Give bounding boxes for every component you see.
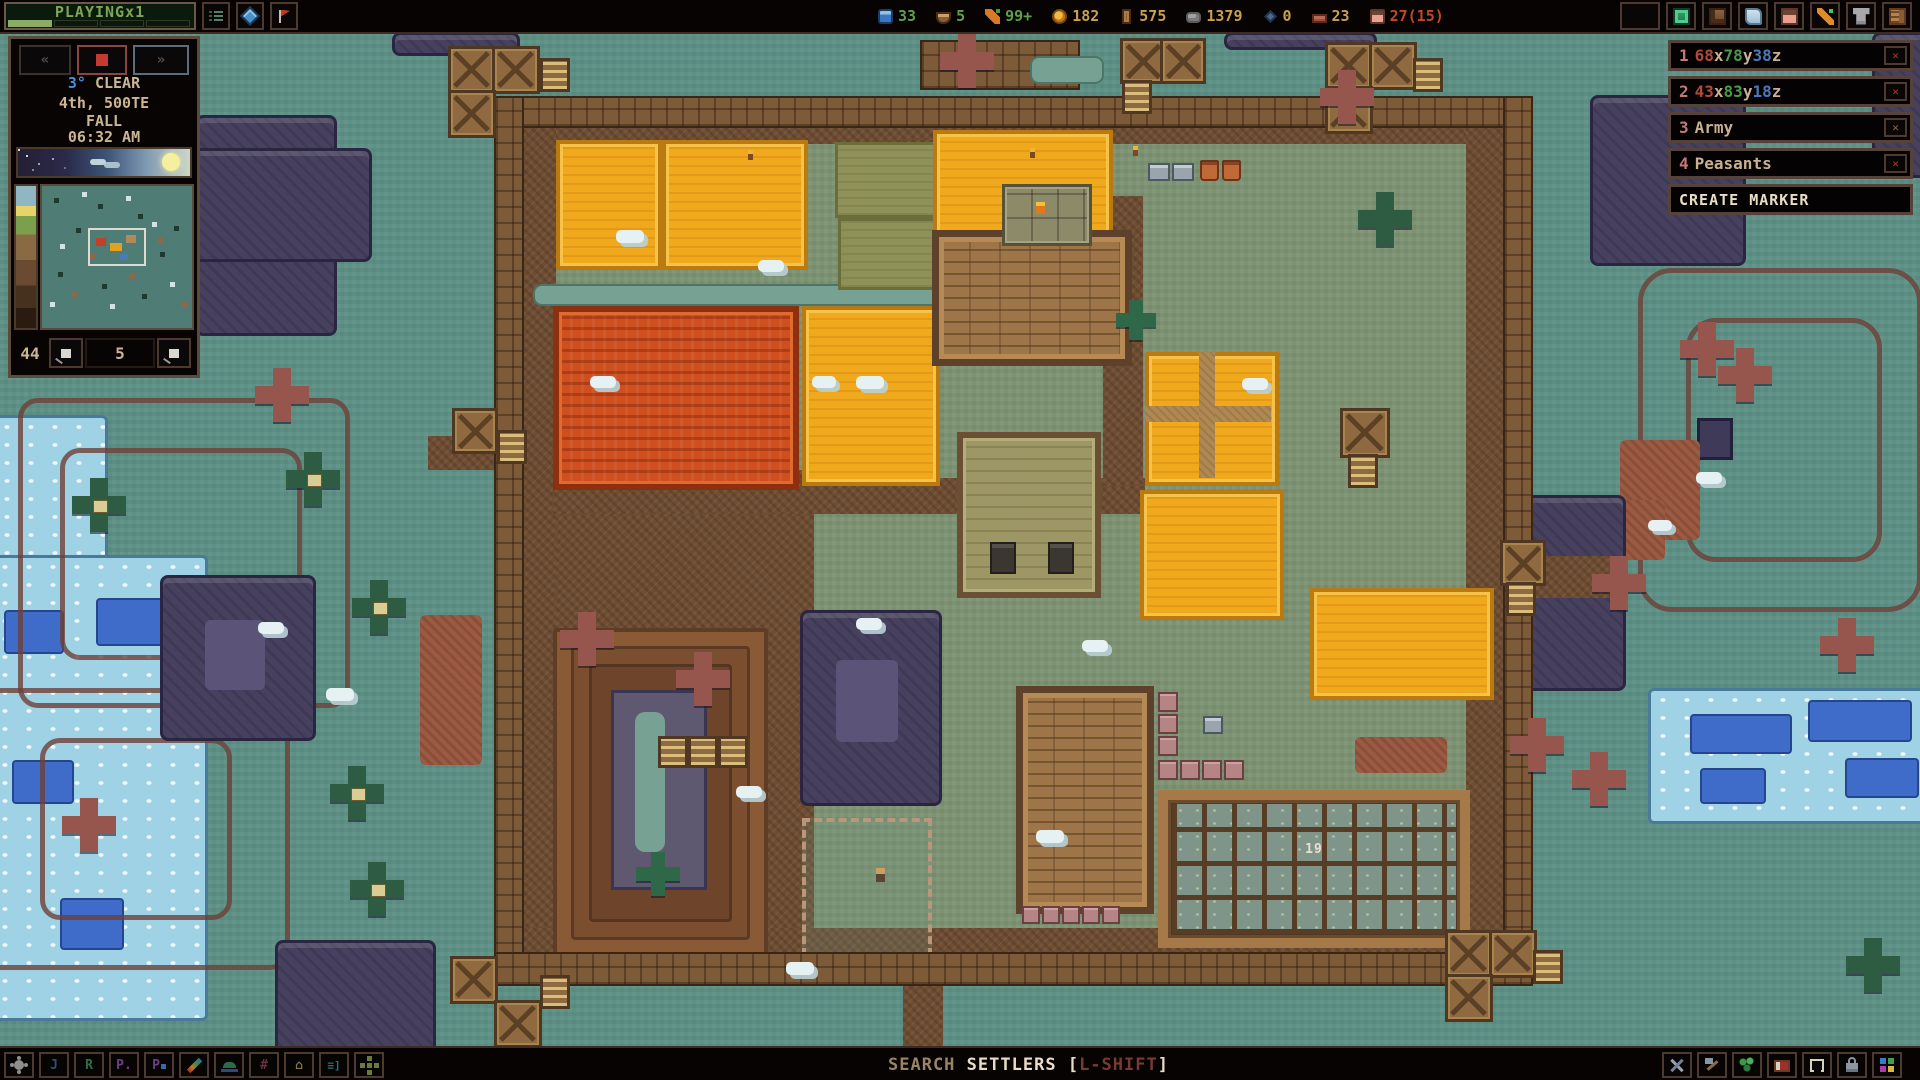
barrel[interactable]	[1022, 906, 1040, 924]
scroll-button[interactable]	[1738, 2, 1768, 30]
cloud	[1242, 378, 1268, 390]
stone-kiln[interactable]	[1002, 184, 1092, 246]
delete-marker-button[interactable]: ✕	[1884, 118, 1907, 137]
stockpile-grid[interactable]: 19	[1158, 790, 1470, 948]
minimap-terrain-specks	[42, 186, 47, 191]
time-panel: « » 3° CLEAR 4th, 500TE FALL 06:32 AM 44…	[8, 36, 200, 378]
speed-segments[interactable]	[8, 20, 190, 27]
stone-icon	[1186, 12, 1201, 23]
autumn-tree[interactable]	[1592, 556, 1646, 610]
palisade-wall-left[interactable]	[494, 96, 524, 962]
green-bush[interactable]	[1116, 300, 1156, 340]
wand-button[interactable]	[1810, 2, 1840, 30]
rooms-icon: R	[85, 1058, 93, 1073]
sign-post	[93, 500, 108, 513]
jobs-icon: J	[50, 1058, 58, 1073]
kiln-fire	[1036, 202, 1045, 214]
harvested-field[interactable]	[838, 218, 946, 290]
resource-gems[interactable]: 0	[1263, 7, 1292, 25]
stop-icon	[96, 54, 108, 66]
wall-tower[interactable]	[1489, 930, 1537, 978]
pine-tree[interactable]	[352, 580, 406, 634]
lock-icon	[1844, 1057, 1860, 1073]
delete-marker-button[interactable]: ✕	[1884, 46, 1907, 65]
blank-button[interactable]	[1620, 2, 1660, 30]
zones-icon: P	[152, 1058, 166, 1073]
farm-tool-button[interactable]	[1732, 1052, 1762, 1078]
resource-amber[interactable]: 182	[1052, 7, 1099, 25]
cloud	[326, 688, 354, 701]
tower-ladder[interactable]	[540, 58, 570, 92]
settler-figure[interactable]	[876, 868, 885, 882]
game-window: 19	[0, 0, 1920, 1080]
pattern-icon	[367, 1063, 372, 1068]
weather-value: CLEAR	[95, 74, 140, 92]
marker-count-value: 5	[85, 338, 155, 368]
autumn-tree[interactable]	[255, 368, 309, 422]
minimap-controls: 44 5	[11, 336, 197, 370]
clay-pot[interactable]	[1222, 160, 1241, 181]
wall-tower[interactable]	[1160, 38, 1206, 84]
jobs-tool-button[interactable]: J	[39, 1052, 69, 1078]
resource-settlers[interactable]: 27(15)	[1370, 7, 1444, 25]
wall-torch	[1133, 146, 1138, 156]
furniture-tool-button[interactable]	[1767, 1052, 1797, 1078]
ladder[interactable]	[688, 736, 718, 768]
settler-icon	[1781, 8, 1798, 25]
marker-row-3[interactable]: 3 Army ✕	[1668, 112, 1913, 143]
crossed-swords-icon	[1669, 1057, 1685, 1073]
tower-ladder[interactable]	[497, 430, 527, 464]
journal-icon	[1889, 8, 1906, 25]
cave-hole	[1697, 418, 1733, 460]
depth-value: 44	[11, 344, 49, 363]
wall-tower[interactable]	[1500, 540, 1546, 586]
resource-crops[interactable]: 99+	[985, 7, 1032, 25]
armor-button[interactable]	[1846, 2, 1876, 30]
bed-icon	[1774, 1060, 1790, 1072]
metal-crate[interactable]	[1203, 716, 1223, 734]
plant-icon	[1739, 1057, 1755, 1073]
autumn-tree[interactable]	[1718, 348, 1772, 402]
wheat-field[interactable]	[1140, 490, 1284, 620]
locate-button[interactable]	[49, 338, 83, 368]
clay-pot[interactable]	[1200, 160, 1219, 181]
harvested-field[interactable]	[835, 142, 945, 218]
tome-icon	[1673, 8, 1690, 25]
barrel[interactable]	[1158, 692, 1178, 712]
wall-tower[interactable]	[1340, 408, 1390, 458]
kiln-button[interactable]	[1702, 2, 1732, 30]
cloud	[812, 376, 836, 388]
minimap-field	[110, 243, 122, 251]
barrel[interactable]	[1180, 760, 1200, 780]
armchair[interactable]	[1048, 542, 1074, 574]
meal-icon	[936, 12, 951, 24]
kiln-icon	[1709, 8, 1726, 25]
tower-ladder[interactable]	[1122, 80, 1152, 114]
minimap-red-roof	[96, 238, 106, 246]
left-toolbar: J R P. P # ⌂ ≡]	[4, 1052, 384, 1078]
wheat-field[interactable]	[802, 306, 940, 486]
sign-post	[373, 602, 388, 615]
pine-tree[interactable]	[1846, 938, 1900, 992]
sign-post	[371, 884, 386, 897]
barrel[interactable]	[1102, 906, 1120, 924]
wall-tower[interactable]	[1445, 930, 1493, 978]
barrel[interactable]	[1158, 736, 1178, 756]
wall-torch	[1030, 148, 1035, 158]
rewind-button[interactable]: «	[19, 45, 71, 75]
pine-tree[interactable]	[286, 452, 340, 506]
autumn-tree[interactable]	[1510, 718, 1564, 772]
world-map-viewport[interactable]: 19	[0, 0, 1920, 1080]
top-right-buttons	[1620, 2, 1912, 30]
resource-strip: 33 5 99+ 182 575 1379 0 23 27(15)	[878, 0, 1444, 32]
wheat-field[interactable]	[1310, 588, 1494, 700]
pine-tree[interactable]	[330, 766, 384, 820]
select-tool-button[interactable]	[1802, 1052, 1832, 1078]
cloud-decoration	[90, 159, 106, 165]
home-icon: ⌂	[295, 1058, 303, 1073]
marker-row-2[interactable]: 2 43x83y18z ✕	[1668, 76, 1913, 107]
bottom-bar: J R P. P # ⌂ ≡] SEARCH SETTLERS [L-SHIFT…	[0, 1046, 1920, 1080]
resource-wood[interactable]: 575	[1119, 7, 1166, 25]
stars-decoration	[18, 149, 20, 151]
brush-icon	[186, 1057, 202, 1073]
cloud	[786, 962, 814, 975]
cloud	[258, 622, 284, 634]
autumn-tree[interactable]	[676, 652, 730, 706]
speed-segment-1[interactable]	[8, 20, 52, 27]
cloud	[856, 618, 882, 630]
play-state-box[interactable]: PLAYINGx1	[4, 2, 196, 30]
temperature-value: 3°	[68, 74, 86, 92]
cloud	[736, 786, 762, 798]
plank-hall[interactable]	[932, 230, 1132, 366]
sun-icon	[162, 153, 180, 171]
minimap-water	[120, 254, 128, 260]
resource-stone[interactable]: 1379	[1186, 7, 1242, 25]
cloud	[1082, 640, 1108, 652]
tower-ladder[interactable]	[1413, 58, 1443, 92]
autumn-tree[interactable]	[940, 34, 994, 88]
wheat-field[interactable]	[556, 140, 662, 270]
pattern-tool-button[interactable]	[354, 1052, 384, 1078]
stockpile-count-label: 19	[1168, 842, 1460, 857]
wall-tower[interactable]	[1445, 974, 1493, 1022]
ladder[interactable]	[658, 736, 688, 768]
cloud	[590, 376, 616, 388]
create-marker-button[interactable]: CREATE MARKER	[1668, 184, 1913, 215]
flag-menu-button[interactable]	[270, 2, 298, 30]
stockpile-cells	[1172, 804, 1456, 934]
barrel[interactable]	[1158, 714, 1178, 734]
gem-menu-button[interactable]	[236, 2, 264, 30]
pause-button[interactable]	[77, 45, 127, 75]
wall-tower[interactable]	[448, 90, 496, 138]
minimap[interactable]	[40, 184, 194, 330]
water-pool	[1700, 768, 1766, 804]
metal-crate[interactable]	[1172, 163, 1194, 181]
barrel[interactable]	[1042, 906, 1060, 924]
pine-tree[interactable]	[72, 478, 126, 532]
military-tool-button[interactable]	[1662, 1052, 1692, 1078]
barrel[interactable]	[1082, 906, 1100, 924]
speed-segment-3[interactable]	[100, 20, 144, 27]
zones-tool-button[interactable]: P	[144, 1052, 174, 1078]
outfit-tool-button[interactable]	[214, 1052, 244, 1078]
home-tool-button[interactable]: ⌂	[284, 1052, 314, 1078]
plank-storehouse[interactable]	[1016, 686, 1154, 914]
wand-icon	[1817, 8, 1834, 25]
tower-ladder[interactable]	[1506, 582, 1536, 616]
scroll-icon	[1745, 8, 1762, 25]
palette-tool-button[interactable]	[1872, 1052, 1902, 1078]
autumn-tree[interactable]	[1820, 618, 1874, 672]
settler-button[interactable]	[1774, 2, 1804, 30]
gear-icon	[14, 1060, 24, 1070]
list-bracket-icon: ≡]	[327, 1059, 340, 1072]
field-cross-path	[1199, 352, 1215, 478]
build-tool-button[interactable]	[1697, 1052, 1727, 1078]
fast-forward-button[interactable]: »	[133, 45, 189, 75]
barrel[interactable]	[1158, 760, 1178, 780]
priority-tool-button[interactable]: P.	[109, 1052, 139, 1078]
wall-tower[interactable]	[450, 956, 498, 1004]
pond	[1030, 56, 1104, 84]
palisade-wall-bottom[interactable]	[494, 952, 1533, 986]
gem-small-icon	[1264, 10, 1277, 23]
autumn-tree[interactable]	[62, 798, 116, 852]
paint-tool-button[interactable]	[179, 1052, 209, 1078]
animal-pen[interactable]	[802, 818, 932, 956]
carrot-icon	[985, 9, 1000, 24]
season-line: FALL	[11, 113, 197, 129]
rock-inner	[205, 620, 265, 690]
priority-icon: P.	[116, 1058, 132, 1073]
cloud	[856, 376, 884, 389]
green-bush[interactable]	[636, 852, 680, 896]
flag-icon	[278, 10, 290, 23]
settler-face-icon	[1370, 9, 1385, 24]
pine-tree[interactable]	[1358, 192, 1412, 246]
metal-crate[interactable]	[1148, 163, 1170, 181]
marker-row-4[interactable]: 4 Peasants ✕	[1668, 148, 1913, 179]
log-menu-button[interactable]	[202, 2, 230, 30]
sign-post	[307, 474, 322, 487]
cloud	[1696, 472, 1722, 484]
gear-tool-button[interactable]	[4, 1052, 34, 1078]
day-night-bar[interactable]	[16, 147, 192, 178]
speed-segment-2[interactable]	[54, 20, 98, 27]
water-pool	[1845, 758, 1919, 798]
wall-tower[interactable]	[1369, 42, 1417, 90]
palisade-wall-right[interactable]	[1503, 96, 1533, 962]
speed-segment-4[interactable]	[146, 20, 190, 27]
grid-icon: #	[260, 1058, 268, 1073]
locate-button[interactable]	[157, 338, 191, 368]
armor-icon	[1853, 8, 1870, 25]
lock-tool-button[interactable]	[1837, 1052, 1867, 1078]
tower-ladder[interactable]	[540, 975, 570, 1009]
amber-icon	[1052, 9, 1067, 24]
marker-panel: 1 68x78y38z ✕ 2 43x83y18z ✕ 3 Army ✕ 4 P…	[1668, 40, 1913, 220]
water-pool	[1808, 700, 1912, 742]
resource-water[interactable]: 33	[878, 7, 916, 25]
red-roofed-building[interactable]	[553, 306, 799, 490]
play-state-label: PLAYINGx1	[6, 4, 194, 20]
dirt-patch	[420, 615, 482, 765]
search-settlers-hint[interactable]: SEARCH SETTLERS [L-SHIFT]	[888, 1055, 1169, 1075]
wall-tower[interactable]	[492, 46, 540, 94]
water-pool	[1690, 714, 1792, 754]
delete-marker-button[interactable]: ✕	[1884, 154, 1907, 173]
list-tool-button[interactable]: ≡]	[319, 1052, 349, 1078]
autumn-tree[interactable]	[560, 612, 614, 666]
rooms-tool-button[interactable]: R	[74, 1052, 104, 1078]
armchair[interactable]	[990, 542, 1016, 574]
wheat-field[interactable]	[662, 140, 808, 270]
top-menu-buttons	[202, 2, 298, 30]
cloud	[1036, 830, 1064, 843]
barrel[interactable]	[1062, 906, 1080, 924]
brick-icon	[1312, 14, 1327, 23]
wall-torch	[748, 150, 753, 160]
ladder[interactable]	[718, 736, 748, 768]
pit-water	[635, 712, 665, 852]
workshop-floor[interactable]	[957, 432, 1101, 598]
resource-blocks[interactable]: 23	[1312, 7, 1350, 25]
wall-tower[interactable]	[452, 408, 498, 454]
locate-icon	[61, 349, 71, 358]
journal-button[interactable]	[1882, 2, 1912, 30]
resource-meals[interactable]: 5	[936, 7, 965, 25]
tower-ladder[interactable]	[1533, 950, 1563, 984]
grid-tool-button[interactable]: #	[249, 1052, 279, 1078]
right-toolbar	[1662, 1052, 1902, 1078]
cloud	[1648, 520, 1672, 531]
clock-line: 06:32 AM	[11, 129, 197, 145]
barrel[interactable]	[1224, 760, 1244, 780]
gem-icon	[240, 6, 260, 26]
elevation-slider[interactable]	[14, 184, 38, 330]
minimap-view-rectangle[interactable]	[88, 228, 146, 266]
sign-post	[351, 788, 366, 801]
date-line: 4th, 500TE	[11, 95, 197, 111]
weather-line: 3° CLEAR	[11, 75, 197, 91]
wall-tower[interactable]	[494, 1000, 542, 1048]
tome-button[interactable]	[1666, 2, 1696, 30]
hammer-icon	[1704, 1057, 1720, 1073]
log-icon	[1122, 9, 1131, 24]
barrel[interactable]	[1202, 760, 1222, 780]
minimap-building	[126, 235, 136, 243]
cloud	[758, 260, 784, 272]
palette-icon	[1879, 1057, 1895, 1073]
top-bar: PLAYINGx1 33 5 99+ 182 575 1379 0 23 27(…	[0, 0, 1920, 34]
tower-ladder[interactable]	[1348, 454, 1378, 488]
autumn-tree[interactable]	[1320, 70, 1374, 124]
list-icon	[209, 10, 223, 22]
pine-tree[interactable]	[350, 862, 404, 916]
selection-frame-icon	[1810, 1059, 1824, 1072]
autumn-tree[interactable]	[1572, 752, 1626, 806]
cloud	[616, 230, 644, 243]
water-icon	[878, 9, 893, 24]
dirt-road	[522, 124, 556, 962]
dirt-patch	[1355, 737, 1447, 773]
great-tree-center	[836, 660, 898, 742]
wall-tower[interactable]	[448, 46, 496, 94]
cap-icon	[223, 1062, 236, 1068]
delete-marker-button[interactable]: ✕	[1884, 82, 1907, 101]
marker-row-1[interactable]: 1 68x78y38z ✕	[1668, 40, 1913, 71]
locate-icon	[169, 349, 179, 358]
